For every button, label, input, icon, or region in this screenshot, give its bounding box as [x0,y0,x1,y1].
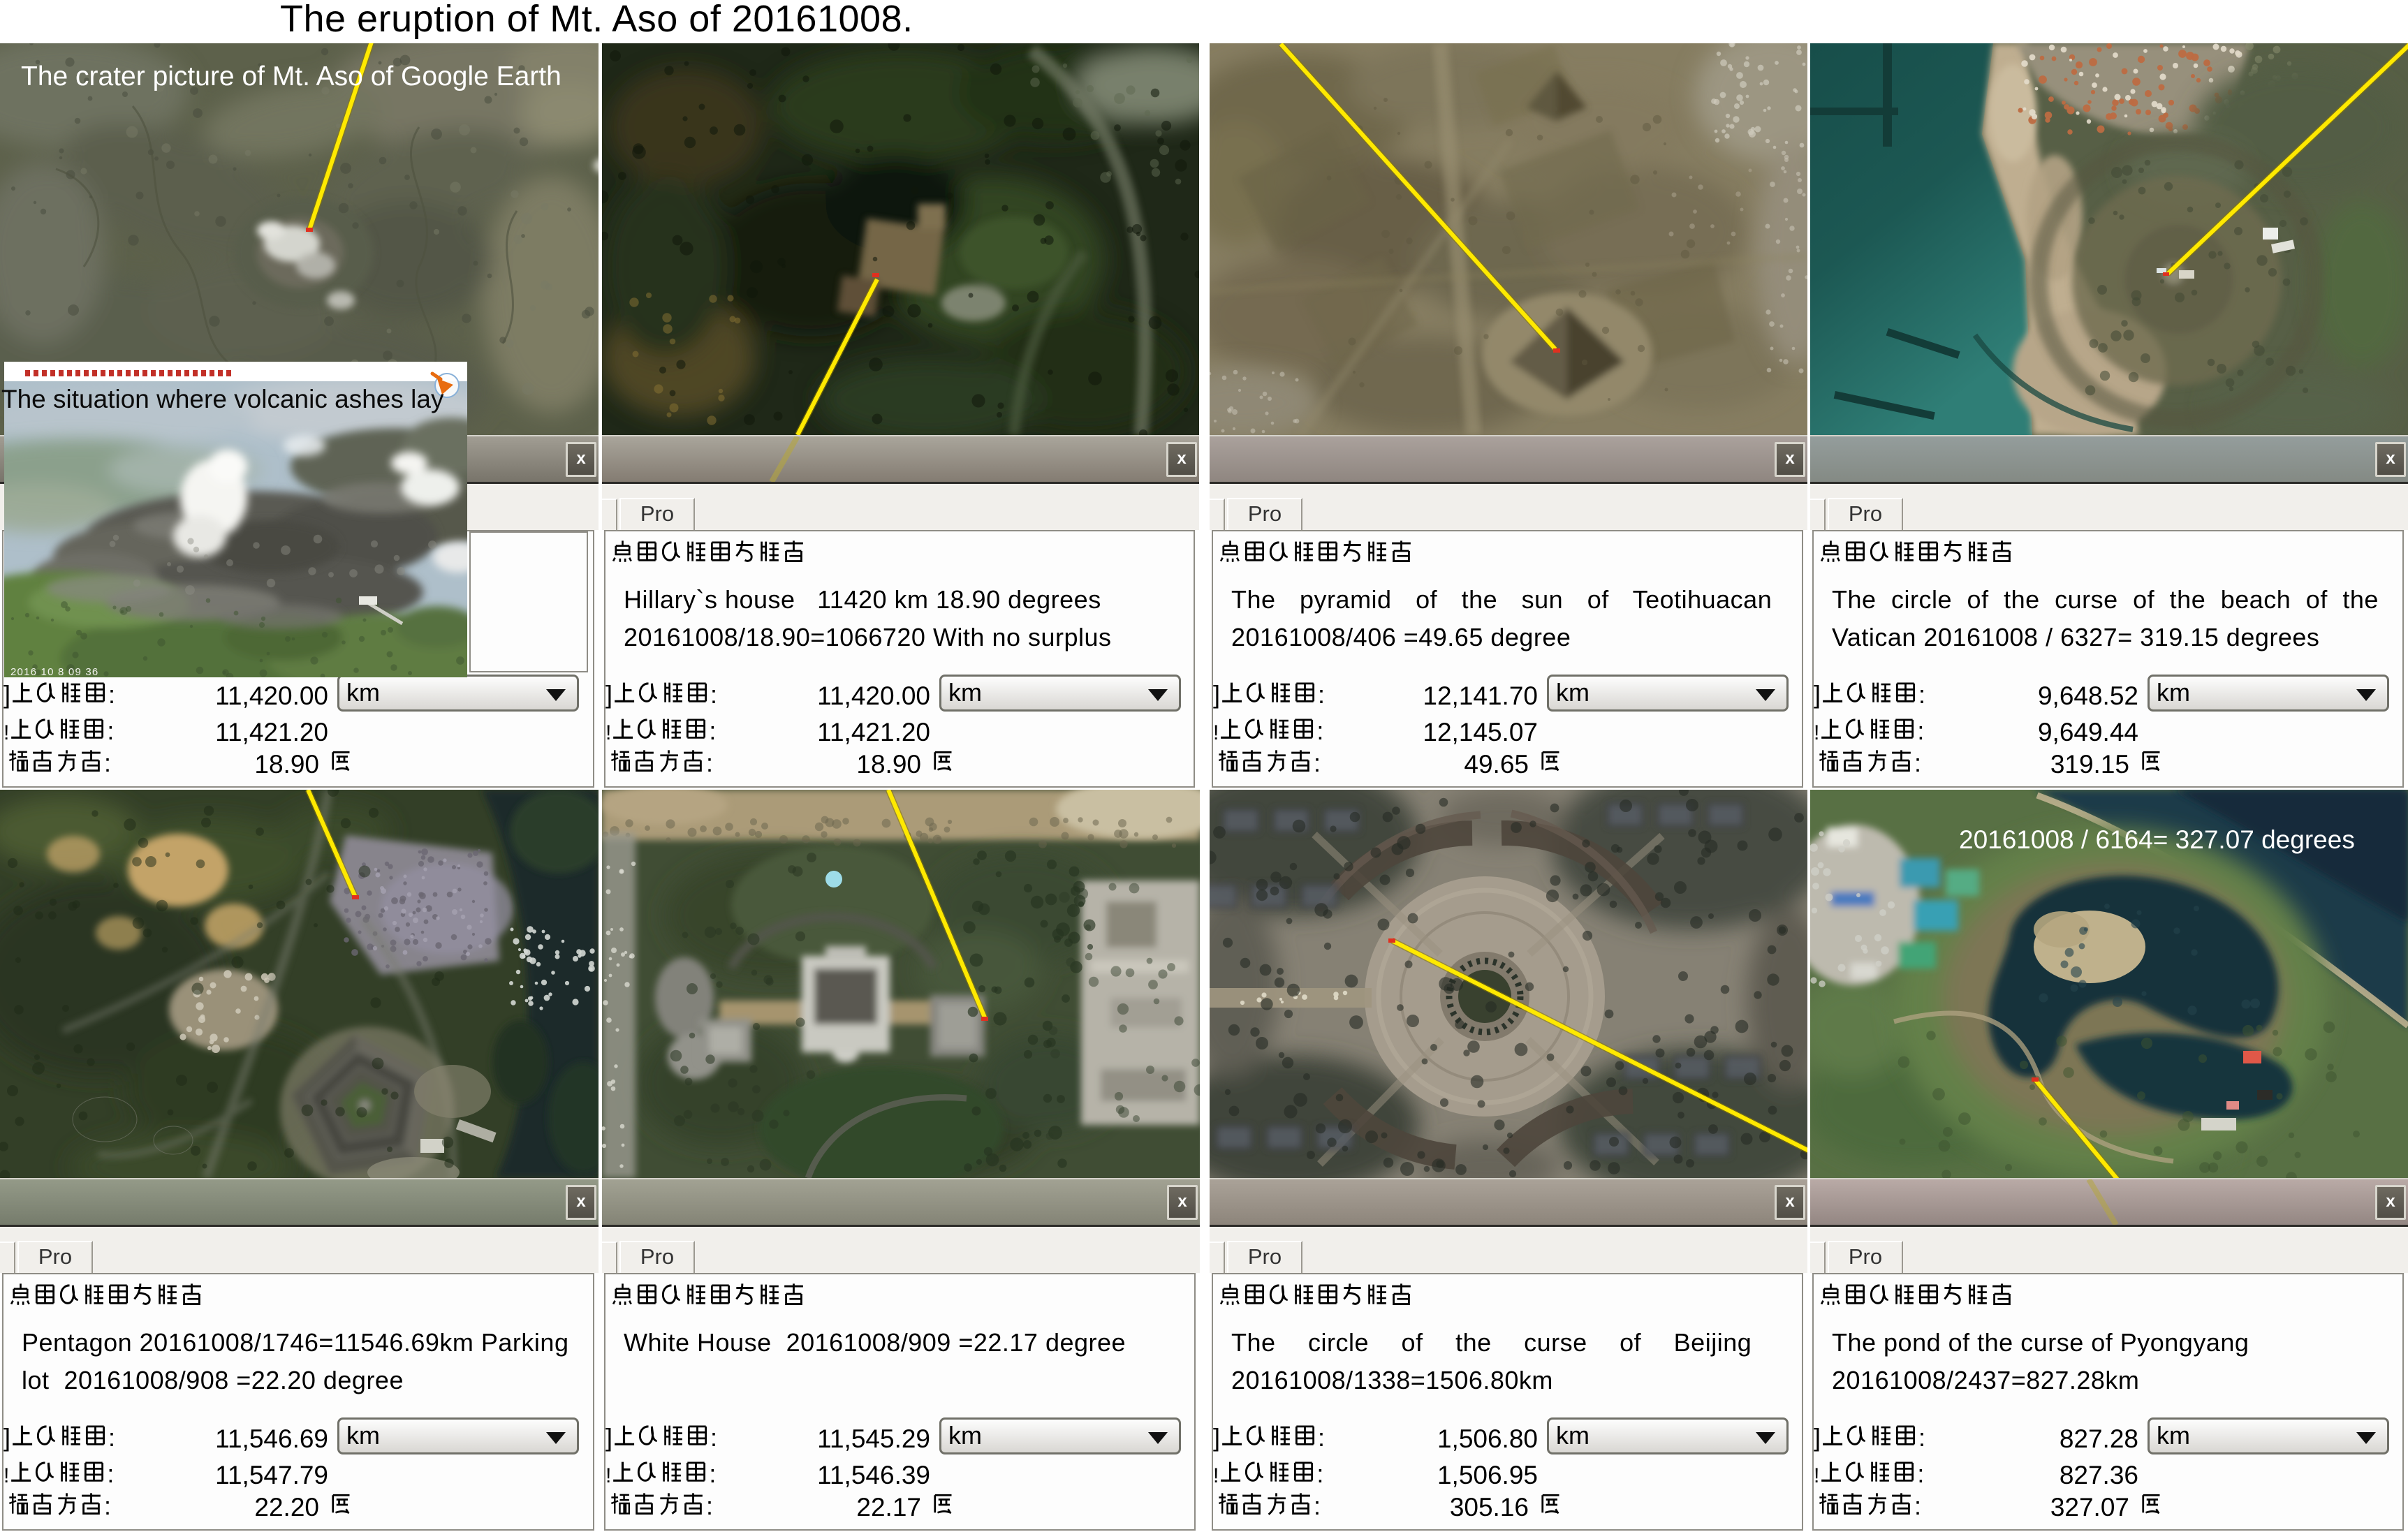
svg-text:2016 10 8 09 36: 2016 10 8 09 36 [10,666,98,677]
svg-text:The crater picture of Mt. Aso: The crater picture of Mt. Aso of Google … [21,61,561,91]
svg-text:20161008 / 6164= 327.07 degree: 20161008 / 6164= 327.07 degrees [1959,825,2355,854]
